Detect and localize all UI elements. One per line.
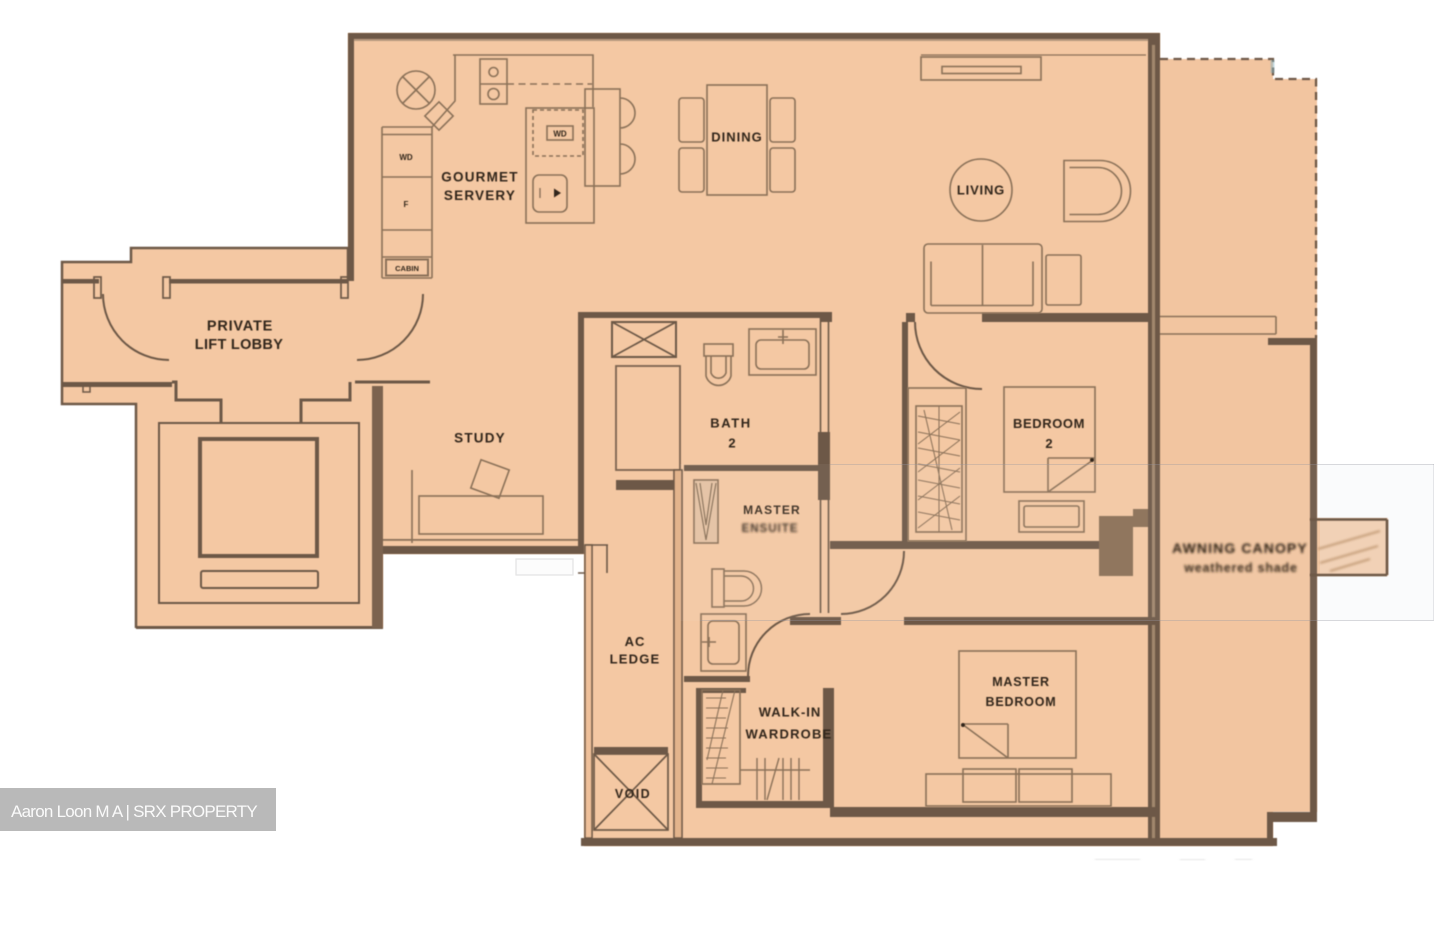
svg-text:WD: WD	[553, 130, 567, 139]
svg-text:2: 2	[1045, 436, 1052, 451]
svg-text:AWNING CANOPY: AWNING CANOPY	[1172, 540, 1308, 556]
svg-text:LIFT LOBBY: LIFT LOBBY	[195, 337, 283, 353]
svg-text:BATH: BATH	[710, 416, 752, 431]
svg-text:MASTER: MASTER	[992, 675, 1050, 689]
svg-text:BEDROOM: BEDROOM	[986, 695, 1057, 709]
svg-text:2: 2	[728, 436, 735, 451]
svg-text:SERVERY: SERVERY	[444, 188, 516, 203]
svg-text:DINING: DINING	[711, 130, 763, 145]
svg-text:WD: WD	[399, 153, 413, 162]
svg-text:CABIN: CABIN	[395, 264, 419, 273]
svg-text:WALK-IN: WALK-IN	[759, 705, 822, 720]
svg-text:VOID: VOID	[615, 787, 651, 801]
svg-text:LEDGE: LEDGE	[610, 652, 661, 667]
svg-text:STUDY: STUDY	[454, 431, 506, 446]
svg-text:GOURMET: GOURMET	[441, 170, 518, 185]
svg-text:PRIVATE: PRIVATE	[207, 319, 273, 335]
svg-text:F: F	[404, 200, 409, 209]
svg-text:BEDROOM: BEDROOM	[1013, 416, 1085, 431]
svg-text:AC: AC	[625, 634, 646, 649]
svg-text:LIVING: LIVING	[957, 183, 1005, 198]
svg-text:WARDROBE: WARDROBE	[746, 727, 833, 742]
svg-text:weathered shade: weathered shade	[1183, 561, 1297, 575]
